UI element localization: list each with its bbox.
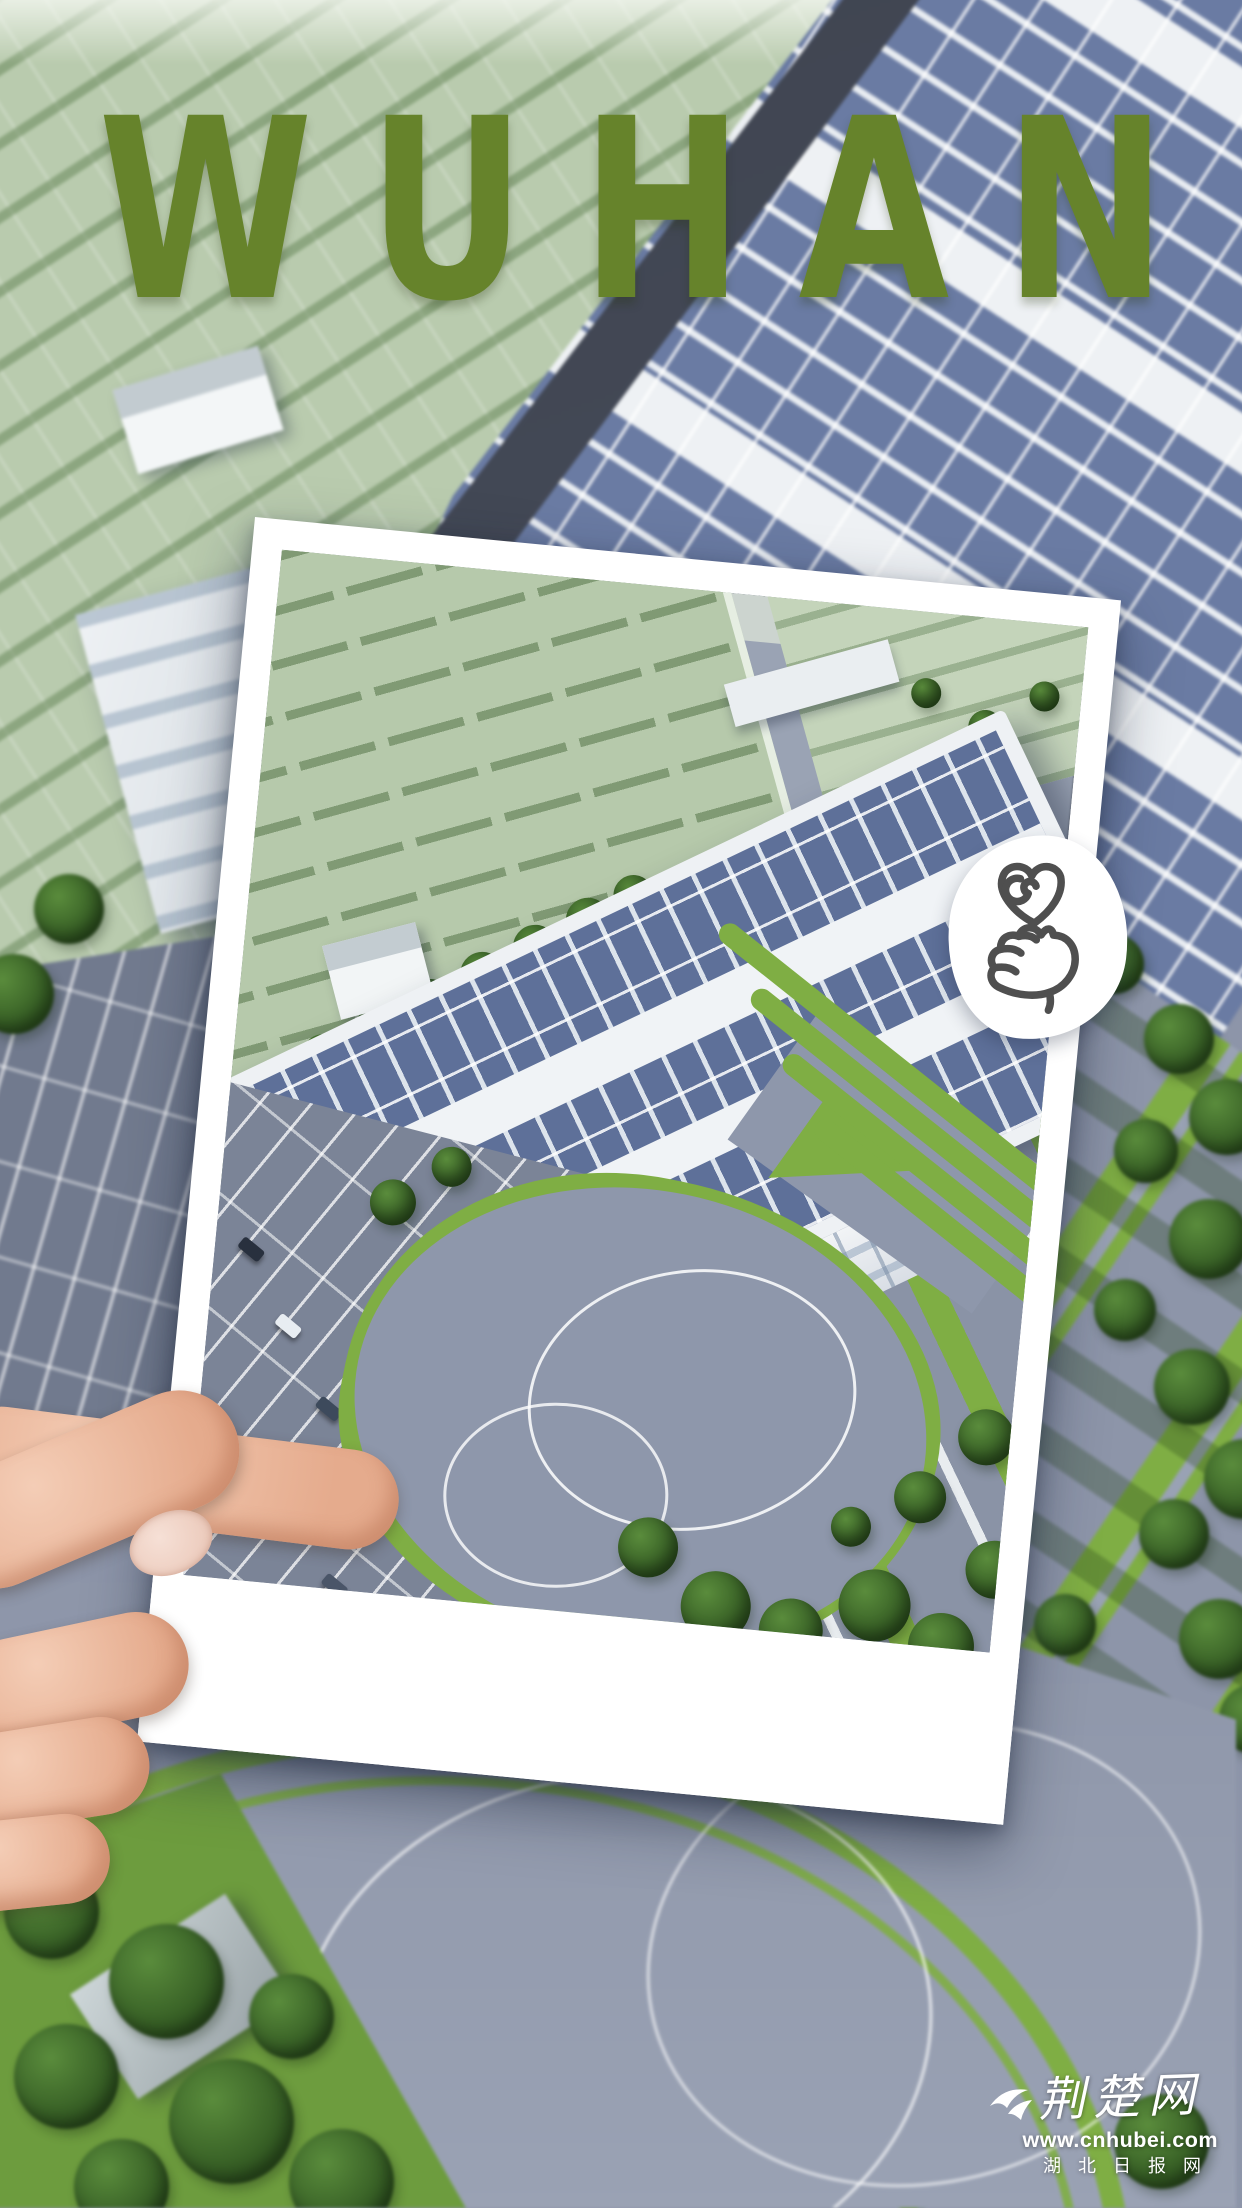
swoosh-hand-icon (988, 2082, 1036, 2124)
watermark-logo-row: 荆楚网 (988, 2076, 1218, 2128)
poster-stage: WUHAN 荆楚网 www.cnhubei.com 湖北日报网 (0, 0, 1242, 2208)
watermark-site-name: 湖北日报网 (988, 2152, 1218, 2178)
poster-title: WUHAN (98, 106, 1143, 316)
watermark-logo-text: 荆楚网 (1037, 2069, 1219, 2127)
thumb (0, 1372, 258, 1607)
pinky-finger (0, 1809, 114, 1916)
watermark-url: www.cnhubei.com (988, 2128, 1218, 2153)
watermark: 荆楚网 www.cnhubei.com 湖北日报网 (988, 2076, 1218, 2172)
